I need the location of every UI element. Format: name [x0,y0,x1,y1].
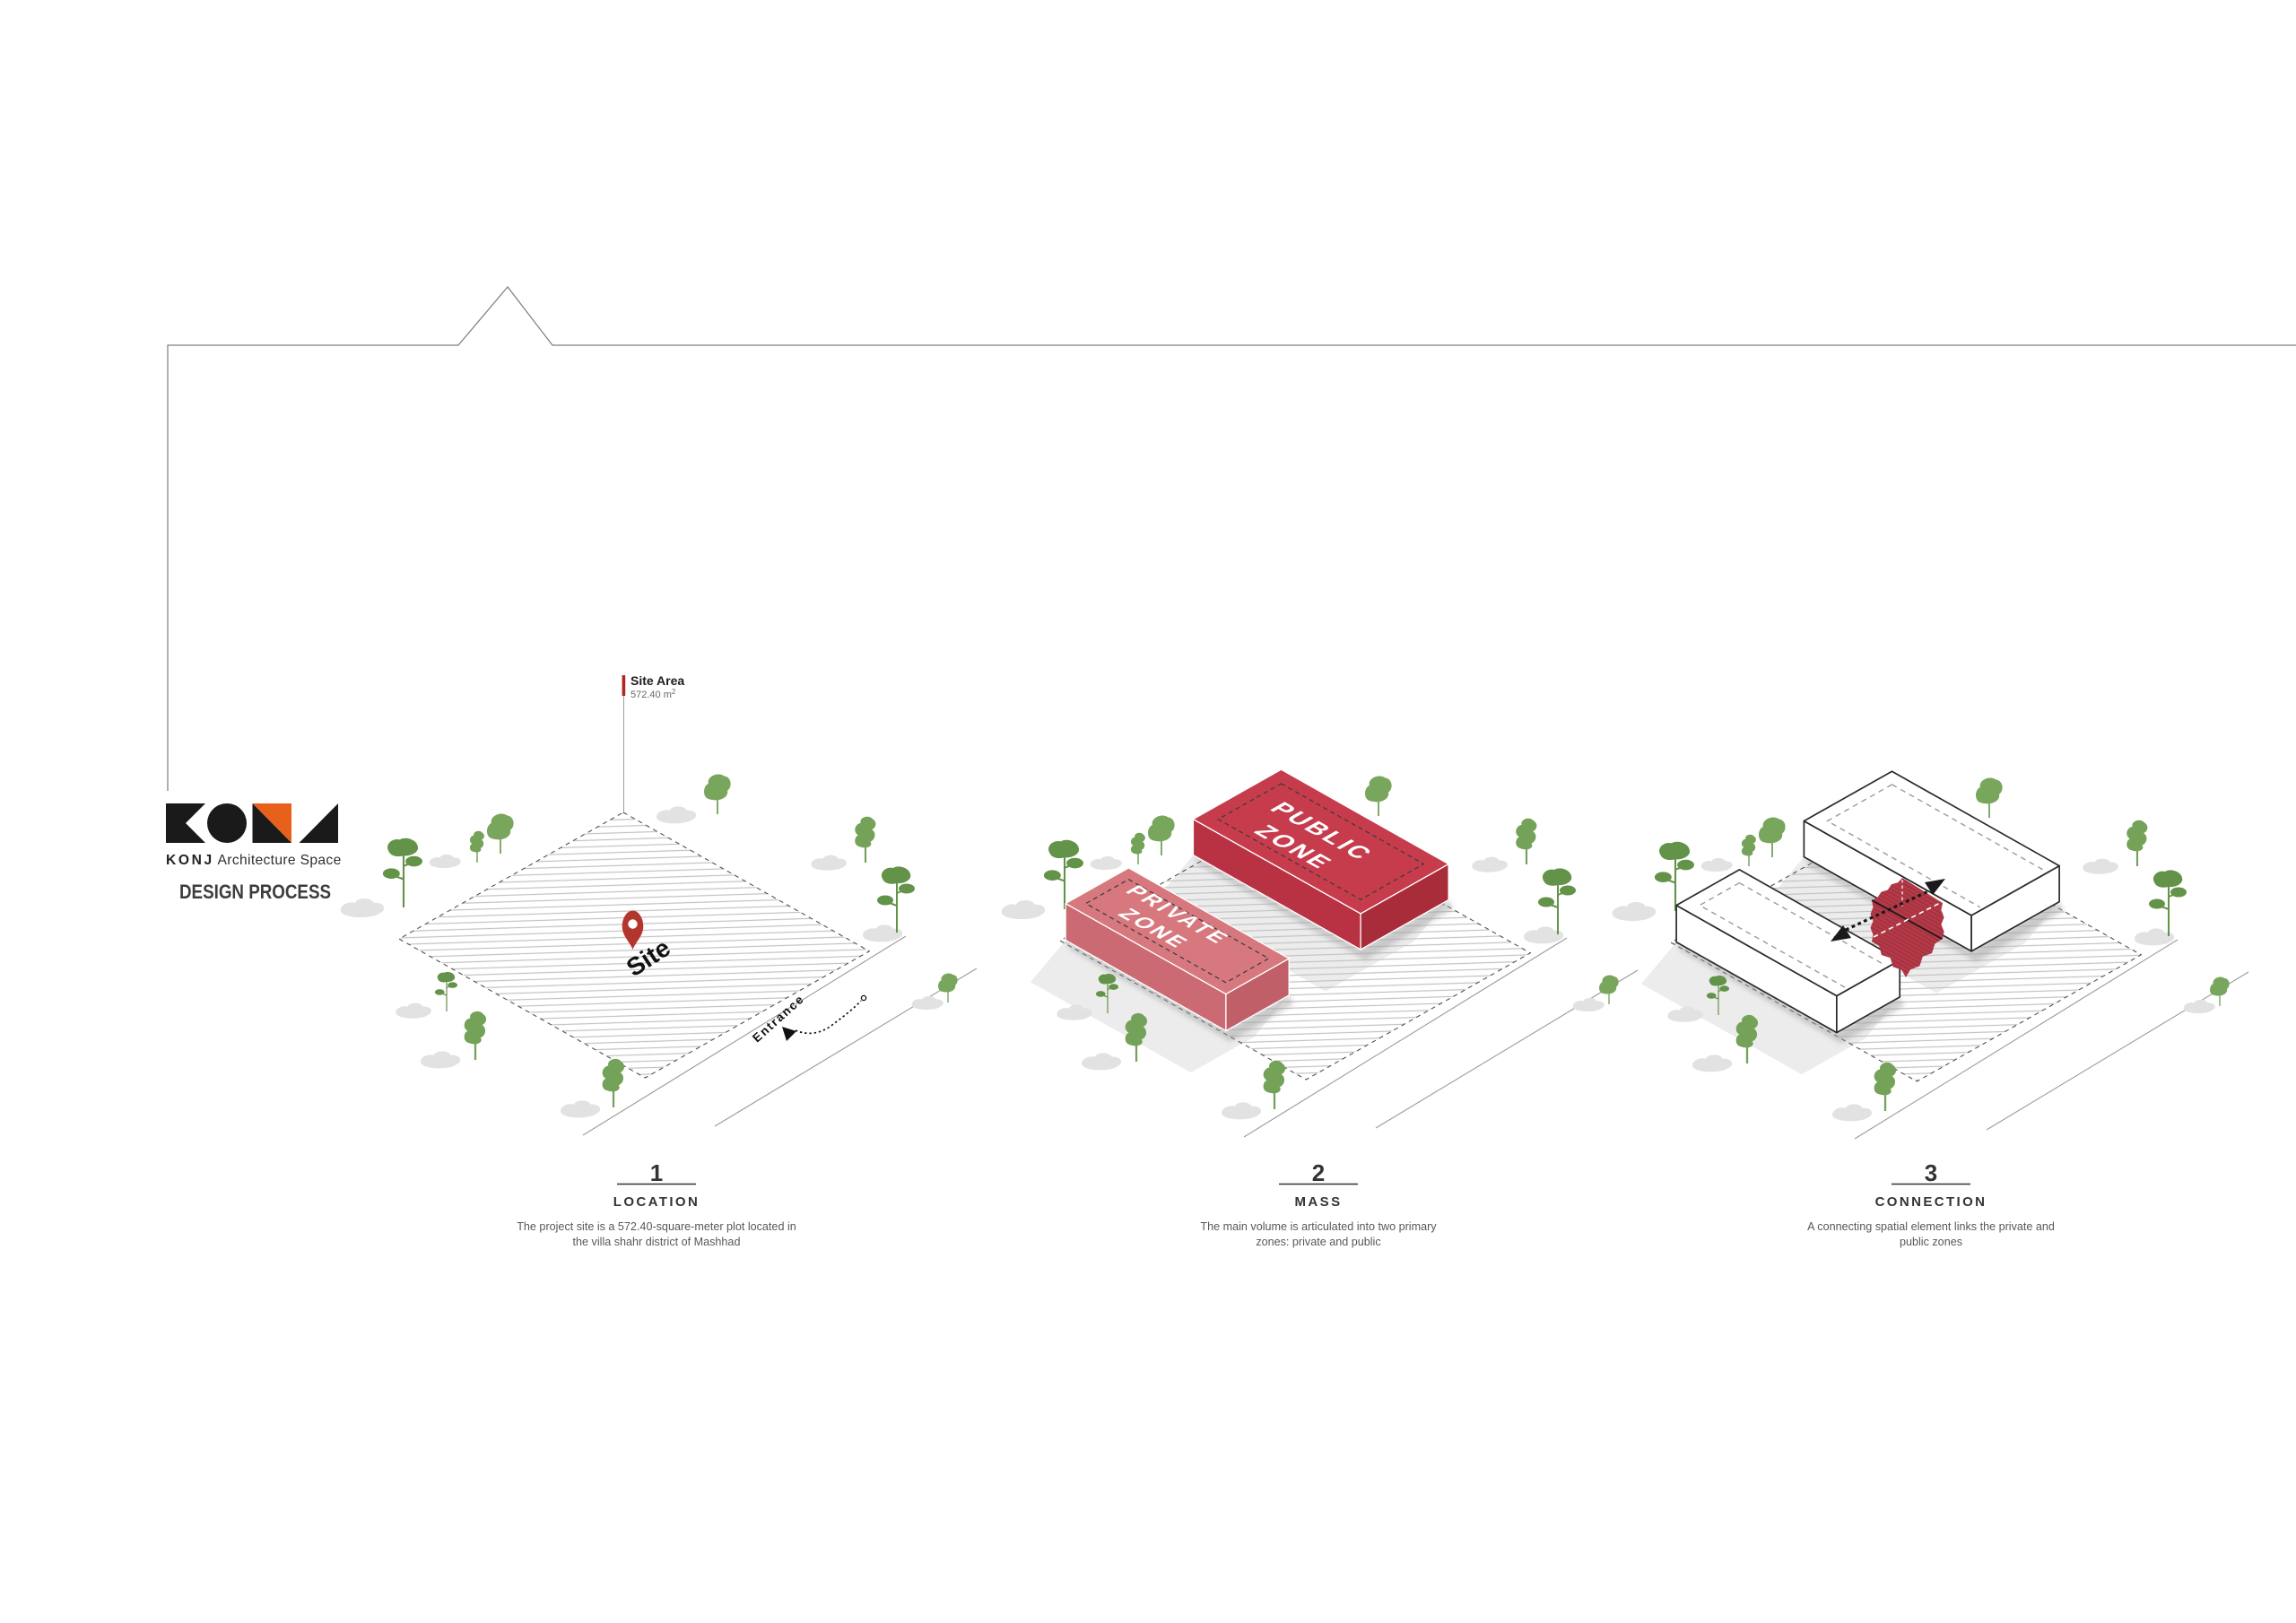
svg-text:3: 3 [1925,1159,1937,1186]
svg-text:zones: private and public: zones: private and public [1256,1236,1380,1248]
svg-text:MASS: MASS [1295,1194,1343,1210]
svg-text:Site Area: Site Area [631,673,684,688]
svg-text:1: 1 [650,1159,663,1186]
svg-text:The project site is a 572.40-s: The project site is a 572.40-square-mete… [517,1220,796,1233]
svg-text:public zones: public zones [1900,1236,1962,1248]
svg-text:A connecting spatial element l: A connecting spatial element links the p… [1807,1220,2055,1233]
svg-text:2: 2 [1312,1159,1325,1186]
svg-text:572.40 m2: 572.40 m2 [631,688,676,700]
svg-text:DESIGN PROCESS: DESIGN PROCESS [179,881,331,903]
svg-text:KONJ Architecture Space: KONJ Architecture Space [166,853,342,868]
svg-text:LOCATION: LOCATION [613,1194,700,1210]
svg-text:the villa shahr district of Ma: the villa shahr district of Mashhad [573,1236,741,1248]
svg-text:The main volume is articulated: The main volume is articulated into two … [1200,1220,1437,1233]
svg-text:CONNECTION: CONNECTION [1875,1194,1987,1210]
